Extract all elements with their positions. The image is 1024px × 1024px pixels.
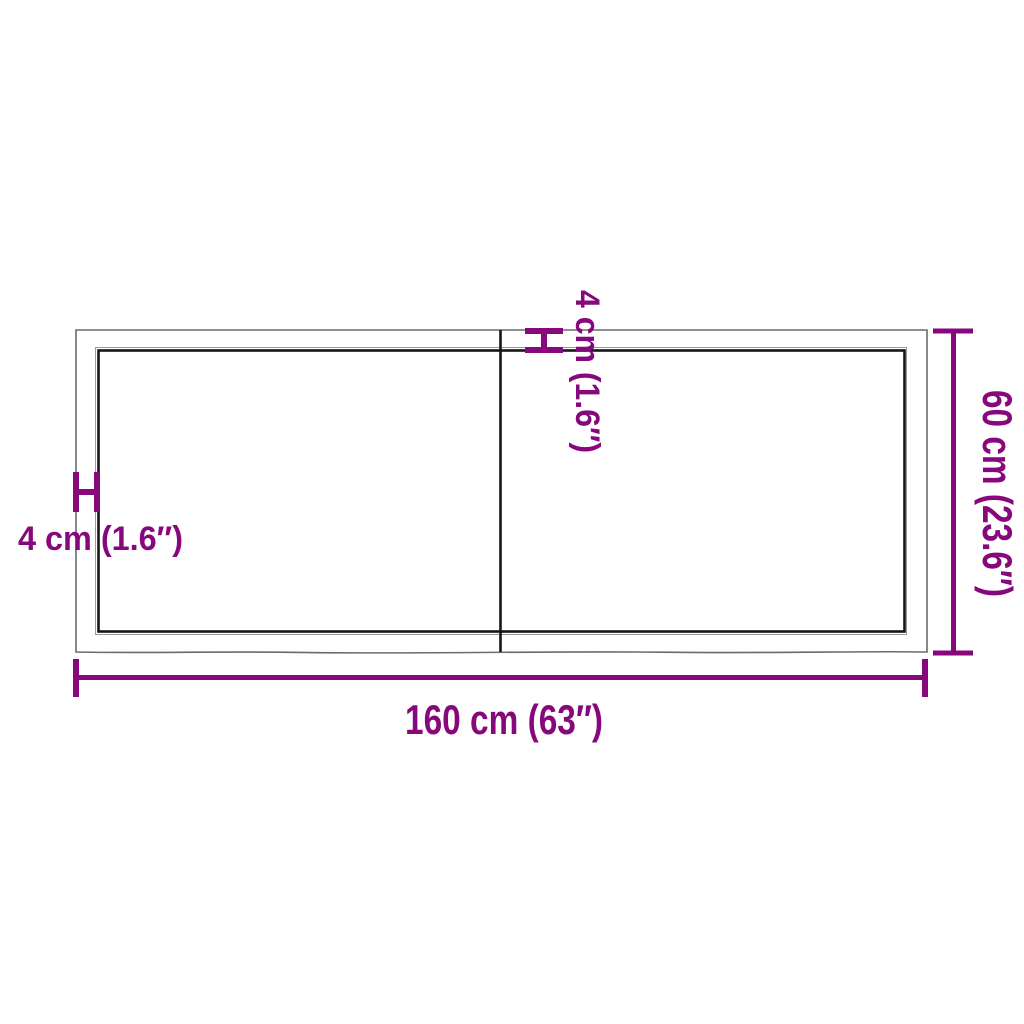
dimension-cap bbox=[933, 651, 973, 656]
diagram-background bbox=[0, 0, 1024, 1024]
bracket-bar bbox=[76, 489, 97, 495]
dimension-stem bbox=[951, 331, 956, 653]
width-dimension-label: 160 cm (63″) bbox=[405, 696, 603, 743]
dimension-stem bbox=[76, 675, 925, 680]
side-thickness-label: 4 cm (1.6″) bbox=[18, 520, 183, 558]
height-dimension-label: 60 cm (23.6″) bbox=[974, 390, 1021, 597]
bracket-bar bbox=[541, 331, 547, 350]
top-thickness-label: 4 cm (1.6″) bbox=[568, 290, 606, 453]
dimension-cap bbox=[922, 659, 928, 697]
dimension-diagram: 160 cm (63″) 60 cm (23.6″) 4 cm (1.6″) 4… bbox=[0, 0, 1024, 1024]
